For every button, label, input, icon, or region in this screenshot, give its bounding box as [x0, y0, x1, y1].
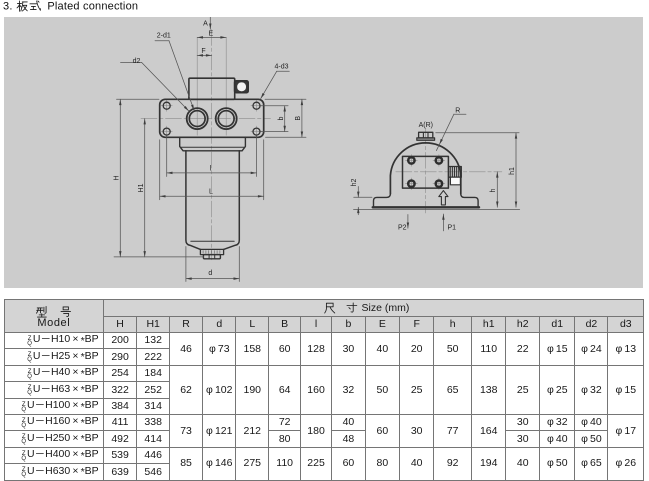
svg-text:b: b — [278, 117, 285, 121]
svg-text:h: h — [490, 188, 497, 192]
svg-text:R: R — [455, 108, 460, 115]
svg-text:d2: d2 — [133, 58, 141, 65]
svg-text:F: F — [201, 48, 205, 55]
svg-text:L: L — [209, 189, 213, 196]
svg-text:h2: h2 — [351, 179, 358, 187]
svg-text:B: B — [295, 116, 302, 121]
svg-text:H1: H1 — [138, 183, 145, 192]
svg-text:2-d1: 2-d1 — [157, 33, 171, 40]
svg-text:P2: P2 — [398, 225, 407, 232]
svg-text:H: H — [114, 175, 121, 180]
svg-text:h1: h1 — [509, 167, 516, 175]
svg-text:d: d — [208, 270, 212, 277]
svg-text:A: A — [203, 21, 208, 28]
svg-text:E: E — [208, 31, 213, 38]
svg-text:4-d3: 4-d3 — [274, 64, 288, 71]
svg-text:A(R): A(R) — [419, 122, 433, 129]
svg-text:P1: P1 — [448, 225, 457, 232]
